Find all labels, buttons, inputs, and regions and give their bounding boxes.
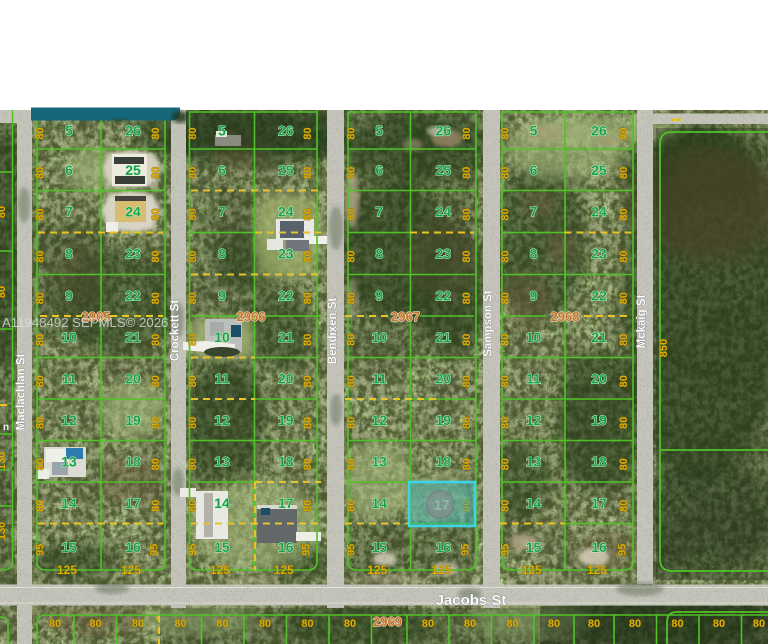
- svg-text:80: 80: [500, 127, 512, 139]
- svg-text:80: 80: [187, 127, 199, 139]
- svg-text:15: 15: [61, 539, 77, 555]
- svg-text:6: 6: [530, 162, 538, 178]
- svg-text:25: 25: [591, 162, 607, 178]
- svg-text:80: 80: [216, 618, 228, 630]
- svg-text:11: 11: [372, 370, 387, 386]
- svg-text:80: 80: [0, 286, 8, 298]
- svg-text:23: 23: [125, 246, 141, 262]
- svg-text:22: 22: [591, 287, 607, 303]
- svg-text:80: 80: [461, 417, 473, 429]
- svg-text:8: 8: [530, 246, 538, 262]
- svg-text:80: 80: [618, 250, 630, 262]
- svg-text:13: 13: [371, 453, 387, 469]
- svg-text:23: 23: [591, 246, 607, 262]
- svg-text:21: 21: [435, 329, 451, 345]
- svg-text:Crockett St: Crockett St: [170, 300, 182, 362]
- svg-text:26: 26: [278, 123, 294, 139]
- svg-text:13: 13: [526, 453, 542, 469]
- svg-text:80: 80: [346, 417, 358, 429]
- svg-text:80: 80: [187, 375, 199, 387]
- svg-text:80: 80: [461, 458, 473, 470]
- svg-text:14: 14: [371, 495, 387, 511]
- svg-text:80: 80: [187, 292, 199, 304]
- svg-text:80: 80: [346, 334, 358, 346]
- svg-text:80: 80: [500, 292, 512, 304]
- svg-text:80: 80: [344, 618, 356, 630]
- svg-text:80: 80: [35, 375, 47, 387]
- svg-text:80: 80: [35, 334, 47, 346]
- svg-text:16: 16: [591, 539, 607, 555]
- svg-text:80: 80: [174, 618, 186, 630]
- svg-text:80: 80: [302, 127, 314, 139]
- svg-text:80: 80: [150, 127, 162, 139]
- svg-text:80: 80: [150, 167, 162, 179]
- svg-text:6: 6: [375, 162, 383, 178]
- svg-text:21: 21: [125, 329, 141, 345]
- svg-text:80: 80: [259, 618, 271, 630]
- svg-text:80: 80: [500, 250, 512, 262]
- svg-text:80: 80: [500, 458, 512, 470]
- svg-text:15: 15: [214, 539, 230, 555]
- svg-text:5: 5: [530, 123, 538, 139]
- svg-text:80: 80: [35, 500, 47, 512]
- svg-text:19: 19: [125, 412, 141, 428]
- svg-text:16: 16: [125, 539, 141, 555]
- svg-text:125: 125: [57, 563, 77, 577]
- svg-text:25: 25: [125, 162, 141, 178]
- svg-text:17: 17: [434, 497, 450, 513]
- svg-text:80: 80: [150, 500, 162, 512]
- svg-text:80: 80: [187, 458, 199, 470]
- svg-text:80: 80: [302, 208, 314, 220]
- svg-text:25: 25: [435, 162, 451, 178]
- svg-text:80: 80: [302, 375, 314, 387]
- svg-text:80: 80: [618, 500, 630, 512]
- svg-text:5: 5: [375, 123, 383, 139]
- svg-text:125: 125: [431, 563, 451, 577]
- svg-text:12: 12: [371, 412, 387, 428]
- svg-text:80: 80: [500, 417, 512, 429]
- svg-text:9: 9: [530, 287, 538, 303]
- svg-text:80: 80: [346, 375, 358, 387]
- svg-text:80: 80: [302, 417, 314, 429]
- svg-text:80: 80: [150, 375, 162, 387]
- svg-text:80: 80: [302, 500, 314, 512]
- svg-text:18: 18: [435, 453, 451, 469]
- svg-text:2968: 2968: [551, 309, 580, 324]
- svg-text:80: 80: [35, 458, 47, 470]
- svg-text:5: 5: [218, 123, 226, 139]
- svg-text:17: 17: [591, 495, 607, 511]
- svg-text:125: 125: [121, 563, 141, 577]
- svg-text:20: 20: [125, 370, 141, 386]
- svg-text:125: 125: [587, 563, 607, 577]
- svg-text:80: 80: [150, 458, 162, 470]
- svg-text:130: 130: [0, 452, 8, 470]
- svg-text:80: 80: [150, 417, 162, 429]
- svg-text:80: 80: [500, 167, 512, 179]
- svg-text:Maclachlan St: Maclachlan St: [16, 353, 28, 430]
- svg-text:80: 80: [346, 292, 358, 304]
- svg-text:80: 80: [618, 458, 630, 470]
- svg-text:80: 80: [500, 208, 512, 220]
- svg-text:2967: 2967: [391, 309, 420, 324]
- svg-text:80: 80: [187, 417, 199, 429]
- svg-text:18: 18: [125, 453, 141, 469]
- svg-text:17: 17: [125, 495, 141, 511]
- svg-text:26: 26: [125, 123, 141, 139]
- svg-text:80: 80: [302, 250, 314, 262]
- svg-text:80: 80: [89, 618, 101, 630]
- svg-text:5: 5: [65, 123, 73, 139]
- svg-text:80: 80: [187, 334, 199, 346]
- svg-text:80: 80: [629, 618, 641, 630]
- svg-text:80: 80: [588, 618, 600, 630]
- svg-text:Sampson St: Sampson St: [483, 290, 495, 357]
- svg-text:22: 22: [435, 287, 451, 303]
- svg-text:80: 80: [35, 292, 47, 304]
- svg-text:95: 95: [460, 544, 472, 556]
- svg-text:80: 80: [500, 500, 512, 512]
- svg-text:25: 25: [278, 162, 294, 178]
- svg-text:7: 7: [218, 204, 226, 220]
- svg-text:12: 12: [526, 412, 542, 428]
- svg-text:18: 18: [278, 453, 294, 469]
- svg-text:10: 10: [214, 329, 230, 345]
- svg-text:13: 13: [61, 453, 77, 469]
- svg-text:21: 21: [278, 329, 294, 345]
- svg-text:18: 18: [591, 453, 607, 469]
- svg-text:26: 26: [591, 123, 607, 139]
- svg-text:80: 80: [301, 618, 313, 630]
- svg-text:23: 23: [278, 246, 294, 262]
- svg-text:80: 80: [713, 618, 725, 630]
- svg-text:80: 80: [461, 167, 473, 179]
- svg-text:80: 80: [150, 208, 162, 220]
- svg-text:10: 10: [371, 329, 387, 345]
- svg-text:A11948492 SEPMLS© 2026: A11948492 SEPMLS© 2026: [2, 315, 168, 330]
- svg-text:80: 80: [187, 208, 199, 220]
- svg-text:19: 19: [591, 412, 607, 428]
- svg-text:24: 24: [435, 204, 451, 220]
- svg-text:16: 16: [278, 539, 294, 555]
- svg-text:850: 850: [658, 339, 670, 357]
- svg-text:7: 7: [65, 204, 73, 220]
- svg-text:8: 8: [375, 246, 383, 262]
- svg-text:80: 80: [346, 500, 358, 512]
- svg-text:80: 80: [461, 250, 473, 262]
- svg-text:80: 80: [618, 375, 630, 387]
- svg-text:80: 80: [500, 334, 512, 346]
- svg-text:7: 7: [530, 204, 538, 220]
- svg-text:14: 14: [526, 495, 542, 511]
- svg-text:80: 80: [618, 167, 630, 179]
- svg-text:95: 95: [187, 544, 199, 556]
- svg-text:10: 10: [526, 329, 542, 345]
- svg-text:80: 80: [150, 250, 162, 262]
- svg-text:80: 80: [346, 167, 358, 179]
- svg-text:16: 16: [435, 539, 451, 555]
- svg-text:80: 80: [618, 334, 630, 346]
- svg-text:80: 80: [0, 206, 8, 218]
- svg-text:80: 80: [346, 250, 358, 262]
- svg-text:7: 7: [375, 204, 383, 220]
- svg-text:80: 80: [464, 618, 476, 630]
- svg-text:130: 130: [0, 522, 8, 540]
- svg-text:24: 24: [278, 204, 294, 220]
- svg-text:11: 11: [62, 370, 77, 386]
- svg-text:95: 95: [149, 544, 161, 556]
- svg-text:22: 22: [125, 287, 141, 303]
- svg-text:80: 80: [346, 458, 358, 470]
- svg-text:14: 14: [61, 495, 77, 511]
- svg-text:80: 80: [302, 334, 314, 346]
- svg-text:80: 80: [35, 167, 47, 179]
- svg-text:80: 80: [618, 417, 630, 429]
- svg-text:80: 80: [302, 458, 314, 470]
- svg-text:8: 8: [218, 246, 226, 262]
- svg-text:2966: 2966: [237, 309, 266, 324]
- svg-text:95: 95: [346, 544, 358, 556]
- svg-text:22: 22: [278, 287, 294, 303]
- svg-text:80: 80: [187, 500, 199, 512]
- svg-text:20: 20: [591, 370, 607, 386]
- svg-text:Mckaig St: Mckaig St: [636, 294, 648, 348]
- svg-text:21: 21: [591, 329, 607, 345]
- svg-text:80: 80: [461, 375, 473, 387]
- svg-text:9: 9: [218, 287, 226, 303]
- svg-text:6: 6: [65, 162, 73, 178]
- svg-text:8: 8: [65, 246, 73, 262]
- svg-text:n: n: [3, 422, 9, 433]
- svg-text:11: 11: [526, 370, 541, 386]
- svg-text:80: 80: [461, 127, 473, 139]
- svg-text:15: 15: [371, 539, 387, 555]
- svg-text:80: 80: [187, 250, 199, 262]
- svg-text:2969: 2969: [373, 614, 402, 629]
- svg-text:80: 80: [618, 292, 630, 304]
- svg-text:24: 24: [125, 204, 141, 220]
- svg-text:80: 80: [302, 167, 314, 179]
- svg-text:13: 13: [214, 453, 230, 469]
- svg-text:23: 23: [435, 246, 451, 262]
- svg-text:125: 125: [367, 563, 387, 577]
- svg-text:80: 80: [618, 127, 630, 139]
- svg-text:15: 15: [526, 539, 542, 555]
- svg-text:9: 9: [65, 287, 73, 303]
- svg-text:95: 95: [500, 544, 512, 556]
- svg-text:80: 80: [35, 208, 47, 220]
- svg-text:11: 11: [215, 370, 230, 386]
- svg-text:14: 14: [214, 495, 230, 511]
- svg-text:125: 125: [521, 563, 541, 577]
- svg-text:10: 10: [61, 329, 77, 345]
- svg-text:125: 125: [210, 563, 230, 577]
- svg-text:80: 80: [461, 292, 473, 304]
- svg-text:17: 17: [278, 495, 294, 511]
- svg-text:20: 20: [435, 370, 451, 386]
- svg-text:12: 12: [61, 412, 77, 428]
- svg-text:Bendixen St: Bendixen St: [327, 298, 339, 365]
- svg-text:80: 80: [753, 618, 765, 630]
- svg-text:80: 80: [671, 618, 683, 630]
- svg-text:80: 80: [506, 618, 518, 630]
- svg-text:80: 80: [150, 292, 162, 304]
- svg-text:9: 9: [375, 287, 383, 303]
- svg-text:80: 80: [35, 127, 47, 139]
- svg-text:80: 80: [346, 127, 358, 139]
- svg-text:80: 80: [132, 618, 144, 630]
- svg-text:19: 19: [435, 412, 451, 428]
- svg-text:80: 80: [187, 167, 199, 179]
- svg-text:19: 19: [278, 412, 294, 428]
- svg-text:80: 80: [500, 375, 512, 387]
- svg-text:80: 80: [461, 334, 473, 346]
- svg-text:80: 80: [461, 208, 473, 220]
- svg-text:Jacobs St: Jacobs St: [436, 592, 507, 609]
- svg-text:125: 125: [274, 563, 294, 577]
- svg-text:80: 80: [35, 250, 47, 262]
- svg-text:95: 95: [35, 544, 47, 556]
- svg-text:12: 12: [214, 412, 230, 428]
- svg-text:24: 24: [591, 204, 607, 220]
- svg-text:80: 80: [346, 208, 358, 220]
- svg-text:80: 80: [49, 618, 61, 630]
- svg-text:80: 80: [422, 618, 434, 630]
- svg-text:80: 80: [150, 334, 162, 346]
- svg-text:20: 20: [278, 370, 294, 386]
- svg-text:80: 80: [618, 208, 630, 220]
- svg-text:95: 95: [617, 544, 629, 556]
- svg-text:6: 6: [218, 162, 226, 178]
- svg-text:95: 95: [301, 544, 313, 556]
- svg-text:80: 80: [35, 417, 47, 429]
- svg-text:26: 26: [435, 123, 451, 139]
- svg-text:80: 80: [302, 292, 314, 304]
- svg-text:80: 80: [548, 618, 560, 630]
